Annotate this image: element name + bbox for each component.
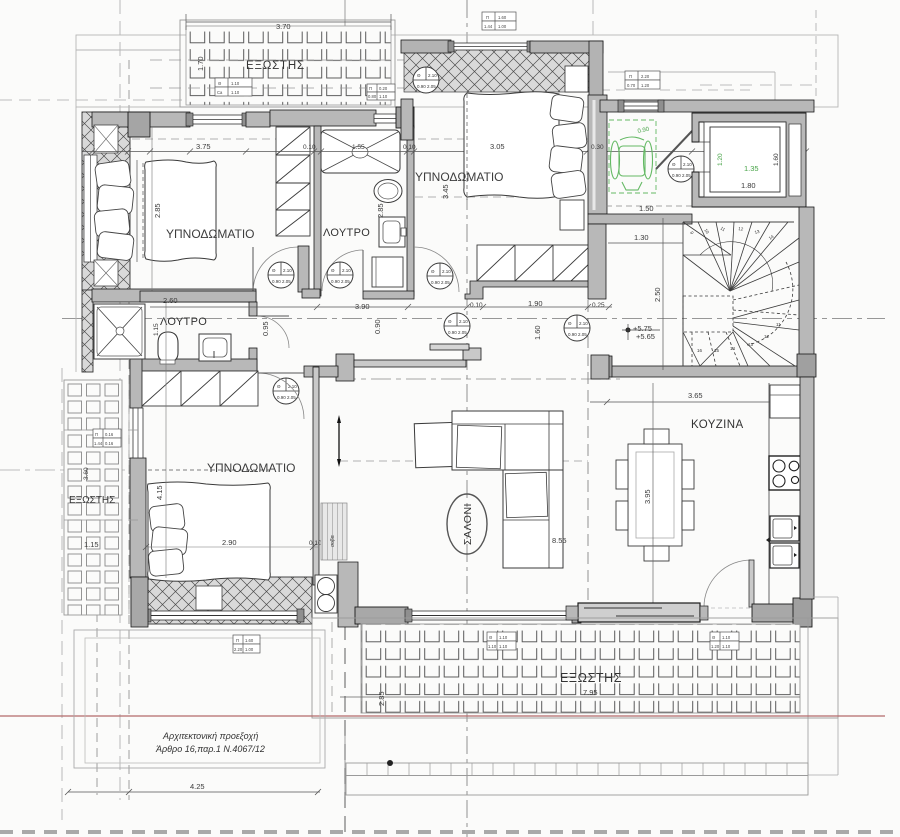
svg-text:3.90: 3.90 xyxy=(355,302,370,311)
svg-text:2.20: 2.20 xyxy=(641,74,650,79)
svg-text:1.20: 1.20 xyxy=(641,83,650,88)
svg-text:2.20: 2.20 xyxy=(234,647,243,652)
svg-text:1.10: 1.10 xyxy=(499,635,508,640)
svg-text:1.00: 1.00 xyxy=(498,24,507,29)
svg-text:Π: Π xyxy=(369,86,372,91)
svg-text:σοβα: σοβα xyxy=(330,535,336,547)
svg-text:Π: Π xyxy=(629,74,632,79)
svg-text:0.25: 0.25 xyxy=(592,302,605,309)
svg-text:1.10: 1.10 xyxy=(488,644,497,649)
svg-text:7.95: 7.95 xyxy=(583,688,598,697)
svg-text:ΕΞΩΣΤΗΣ: ΕΞΩΣΤΗΣ xyxy=(69,495,115,506)
svg-text:3.05: 3.05 xyxy=(490,142,505,151)
svg-text:3.95: 3.95 xyxy=(643,489,652,504)
svg-text:3.60: 3.60 xyxy=(83,467,90,480)
svg-text:2.60: 2.60 xyxy=(163,296,178,305)
svg-text:12: 12 xyxy=(764,334,770,339)
svg-text:15: 15 xyxy=(714,348,720,353)
svg-text:0.10: 0.10 xyxy=(403,144,416,151)
svg-text:1.60: 1.60 xyxy=(245,638,254,643)
svg-text:4.15: 4.15 xyxy=(155,485,164,500)
svg-text:0.10: 0.10 xyxy=(303,144,316,151)
svg-text:1.10: 1.10 xyxy=(499,644,508,649)
svg-text:2.85: 2.85 xyxy=(377,691,386,706)
svg-text:1.10: 1.10 xyxy=(231,81,240,86)
svg-text:Π: Π xyxy=(236,638,239,643)
svg-text:1.60: 1.60 xyxy=(773,153,780,166)
svg-text:0.30: 0.30 xyxy=(591,144,604,151)
svg-text:1.00: 1.00 xyxy=(245,647,254,652)
svg-text:3.70: 3.70 xyxy=(276,22,291,31)
svg-text:ΚΟΥΖΙΝΑ: ΚΟΥΖΙΝΑ xyxy=(691,419,744,431)
svg-text:0.90: 0.90 xyxy=(373,319,382,334)
svg-text:ΣΑΛΟΝΙ: ΣΑΛΟΝΙ xyxy=(462,503,474,545)
svg-text:+5.65: +5.65 xyxy=(636,332,655,341)
svg-text:1.15: 1.15 xyxy=(84,540,99,549)
svg-text:0.20: 0.20 xyxy=(379,86,388,91)
svg-text:0.10: 0.10 xyxy=(470,302,483,309)
svg-text:1.44: 1.44 xyxy=(484,24,493,29)
svg-text:ΥΠΝΟΔΩΜΑΤΙΟ: ΥΠΝΟΔΩΜΑΤΙΟ xyxy=(166,227,255,241)
svg-text:0.80: 0.80 xyxy=(368,94,377,99)
svg-text:1.15: 1.15 xyxy=(153,323,160,336)
svg-text:1.20: 1.20 xyxy=(717,153,724,166)
svg-text:1.10: 1.10 xyxy=(722,644,731,649)
svg-text:1.55: 1.55 xyxy=(352,144,365,151)
svg-text:3.65: 3.65 xyxy=(688,391,703,400)
svg-text:1.10: 1.10 xyxy=(722,635,731,640)
svg-text:3.45: 3.45 xyxy=(441,184,450,199)
svg-text:0.16: 0.16 xyxy=(105,441,114,446)
svg-text:ΕΞΩΣΤΗΣ: ΕΞΩΣΤΗΣ xyxy=(560,671,622,685)
svg-text:ΥΠΝΟΔΩΜΑΤΙΟ: ΥΠΝΟΔΩΜΑΤΙΟ xyxy=(415,170,504,184)
svg-text:8.55: 8.55 xyxy=(552,536,567,545)
svg-text:Άρθρο 16,παρ.1 Ν.4067/12: Άρθρο 16,παρ.1 Ν.4067/12 xyxy=(155,744,265,754)
svg-text:1.20: 1.20 xyxy=(711,644,720,649)
svg-text:ΥΠΝΟΔΩΜΑΤΙΟ: ΥΠΝΟΔΩΜΑΤΙΟ xyxy=(207,461,296,475)
svg-text:1.80: 1.80 xyxy=(741,181,756,190)
svg-text:2.90: 2.90 xyxy=(222,538,237,547)
svg-text:1.30: 1.30 xyxy=(634,233,649,242)
svg-text:0.10: 0.10 xyxy=(309,540,322,547)
svg-text:1.60: 1.60 xyxy=(498,15,507,20)
svg-text:3.75: 3.75 xyxy=(196,142,211,151)
svg-text:1.35: 1.35 xyxy=(744,164,759,173)
svg-text:1.44: 1.44 xyxy=(94,441,103,446)
svg-text:14: 14 xyxy=(730,346,736,351)
svg-text:ΛΟΥΤΡΟ: ΛΟΥΤΡΟ xyxy=(160,316,207,328)
svg-text:Ca: Ca xyxy=(217,90,223,95)
svg-text:Π: Π xyxy=(95,432,98,437)
svg-text:0.16: 0.16 xyxy=(105,432,114,437)
svg-text:Αρχιτεκτονική προεξοχή: Αρχιτεκτονική προεξοχή xyxy=(162,731,258,741)
svg-text:1.10: 1.10 xyxy=(379,94,388,99)
svg-text:13: 13 xyxy=(748,342,754,347)
svg-text:4.25: 4.25 xyxy=(190,782,205,791)
svg-text:1.60: 1.60 xyxy=(533,325,542,340)
svg-text:1.70: 1.70 xyxy=(196,56,205,71)
svg-text:0.70: 0.70 xyxy=(627,83,636,88)
svg-text:2.50: 2.50 xyxy=(653,287,662,302)
svg-text:16: 16 xyxy=(697,348,703,353)
svg-text:0.95: 0.95 xyxy=(261,321,270,336)
svg-text:Π: Π xyxy=(486,15,489,20)
svg-text:ΕΞΩΣΤΗΣ: ΕΞΩΣΤΗΣ xyxy=(246,60,305,72)
svg-text:ΛΟΥΤΡΟ: ΛΟΥΤΡΟ xyxy=(323,227,370,239)
svg-text:1.10: 1.10 xyxy=(231,90,240,95)
svg-text:11: 11 xyxy=(776,322,781,327)
svg-text:2.85: 2.85 xyxy=(376,203,385,218)
svg-text:1.50: 1.50 xyxy=(639,204,654,213)
svg-text:2.85: 2.85 xyxy=(153,203,162,218)
